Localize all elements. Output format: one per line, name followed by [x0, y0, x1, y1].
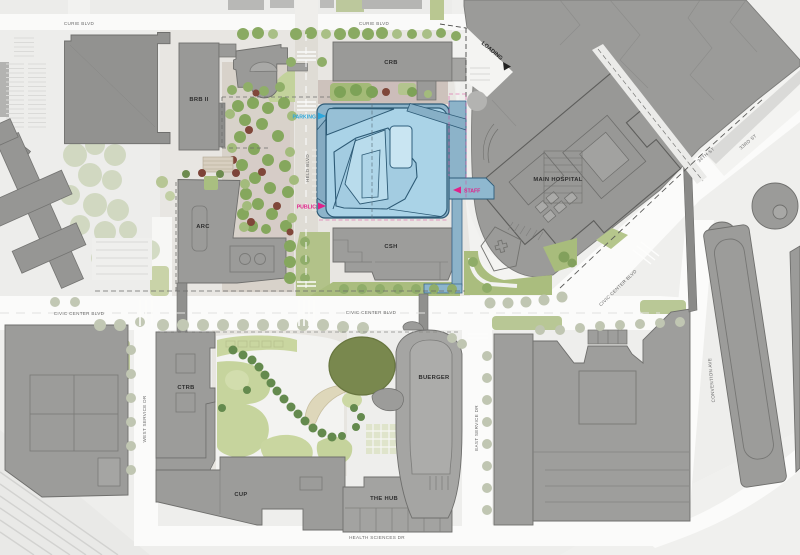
svg-text:THE HUB: THE HUB [370, 496, 398, 502]
svg-text:BUERGER: BUERGER [418, 375, 450, 381]
svg-text:CIVIC CENTER BLVD: CIVIC CENTER BLVD [54, 311, 105, 316]
svg-text:CRB: CRB [384, 60, 397, 66]
svg-text:ARC: ARC [196, 224, 210, 230]
svg-text:CUP: CUP [234, 492, 247, 498]
svg-text:CTRB: CTRB [177, 385, 194, 391]
svg-text:CURIE BLVD: CURIE BLVD [64, 21, 95, 26]
svg-text:STAFF: STAFF [464, 189, 480, 195]
svg-text:CIVIC CENTER BLVD: CIVIC CENTER BLVD [346, 310, 397, 315]
svg-text:PARKING: PARKING [292, 115, 316, 121]
svg-text:EAST SERVICE DR: EAST SERVICE DR [474, 405, 479, 451]
svg-text:WEST SERVICE DR: WEST SERVICE DR [142, 395, 147, 442]
svg-text:MAIN HOSPITAL: MAIN HOSPITAL [533, 177, 582, 183]
svg-text:PUBLIC: PUBLIC [297, 205, 317, 211]
svg-text:HELD BLVD: HELD BLVD [305, 154, 310, 182]
svg-text:HEALTH SCIENCES DR: HEALTH SCIENCES DR [349, 535, 405, 540]
svg-text:CSH: CSH [384, 244, 397, 250]
svg-text:CURIE BLVD: CURIE BLVD [359, 21, 390, 26]
svg-text:BRB II: BRB II [189, 97, 208, 103]
